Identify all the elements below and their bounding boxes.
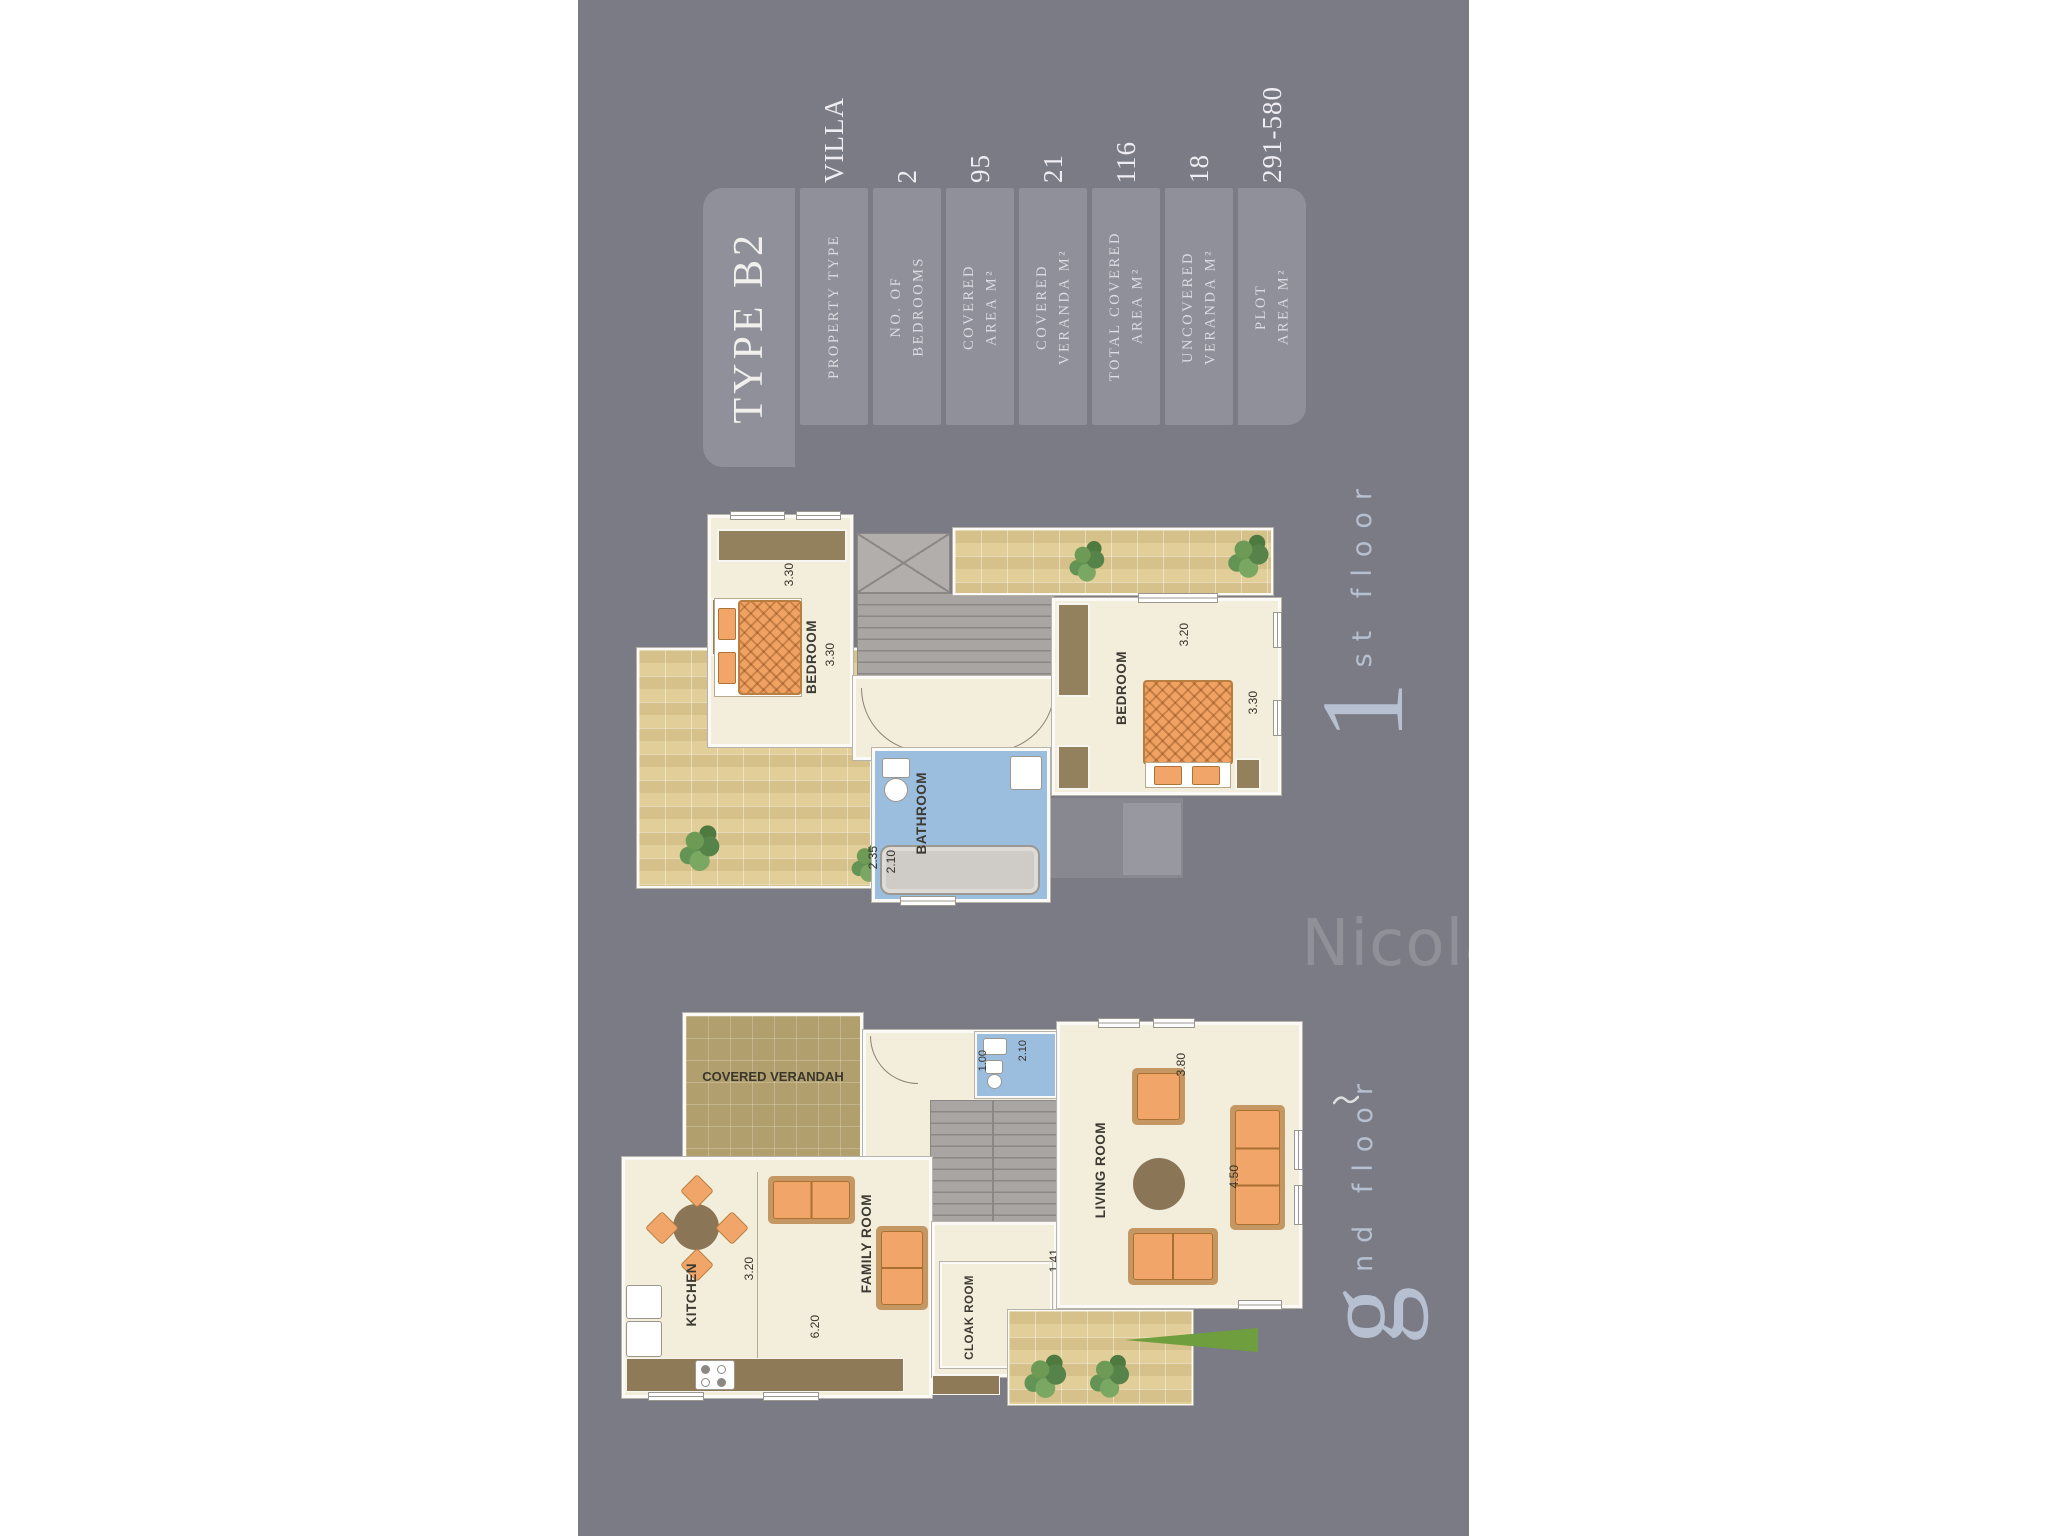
dim-bedroom-left-d: 3.30 bbox=[822, 636, 838, 674]
plant bbox=[1088, 1352, 1136, 1402]
cloak-room-label: CLOAK ROOM bbox=[960, 1274, 980, 1360]
window bbox=[1294, 1130, 1303, 1170]
sofa bbox=[768, 1176, 855, 1224]
kitchen-label: KITCHEN bbox=[680, 1253, 702, 1337]
bedroom-right-label: BEDROOM bbox=[1110, 648, 1132, 728]
spec-label-bedrooms: NO. OF BEDROOMS bbox=[873, 188, 941, 425]
spec-value-plot-area: 291-580 bbox=[1238, 25, 1306, 183]
plant bbox=[678, 822, 726, 876]
window bbox=[648, 1392, 704, 1401]
first-floor-label: 1st floor bbox=[1313, 495, 1413, 740]
room-divider bbox=[757, 1172, 758, 1358]
bed-blanket bbox=[1143, 680, 1233, 765]
window bbox=[1294, 1185, 1303, 1225]
window bbox=[900, 896, 956, 906]
pillow bbox=[1154, 766, 1182, 785]
spec-label-total-covered: TOTAL COVERED AREA M² bbox=[1092, 188, 1160, 425]
dim-living-w: 3.80 bbox=[1173, 1046, 1189, 1084]
kitchen-sink bbox=[626, 1321, 662, 1357]
window bbox=[1238, 1300, 1282, 1310]
bathtub bbox=[880, 845, 1040, 895]
covered-verandah-label: COVERED VERANDAH bbox=[688, 1066, 858, 1086]
spec-value-bedrooms: 2 bbox=[873, 25, 941, 183]
staircase bbox=[857, 593, 1055, 676]
fridge bbox=[626, 1285, 662, 1319]
dim-bedroom-left-w: 3.30 bbox=[781, 556, 797, 594]
bathroom-sink bbox=[1010, 756, 1042, 790]
spec-value-total-covered: 116 bbox=[1092, 25, 1160, 183]
bathroom-label: BATHROOM bbox=[910, 758, 932, 868]
burner bbox=[717, 1365, 726, 1374]
dining-table bbox=[673, 1204, 719, 1250]
living-room-label: LIVING ROOM bbox=[1088, 1118, 1112, 1222]
bed-blanket bbox=[738, 600, 802, 695]
spec-value-covered-area: 95 bbox=[946, 25, 1014, 183]
sofa bbox=[1128, 1228, 1218, 1285]
wardrobe bbox=[1057, 745, 1090, 790]
family-room-label: FAMILY ROOM bbox=[855, 1192, 877, 1296]
dim-bedroom-right-w: 3.20 bbox=[1176, 616, 1192, 654]
toilet-tank bbox=[882, 758, 910, 778]
spec-label-property-type: PROPERTY TYPE bbox=[800, 188, 868, 425]
dim-bedroom-right-d: 3.30 bbox=[1245, 684, 1261, 722]
spec-label-uncovered-veranda: UNCOVERED VERANDA M² bbox=[1165, 188, 1233, 425]
burner bbox=[701, 1365, 710, 1374]
dim-kitchen-l: 6.20 bbox=[807, 1308, 823, 1346]
plant bbox=[1022, 1352, 1074, 1402]
dim-wc-d: 2.10 bbox=[1016, 1034, 1030, 1068]
pillow bbox=[718, 608, 736, 640]
kitchen-counter bbox=[626, 1358, 904, 1392]
window bbox=[1273, 700, 1282, 736]
dim-kitchen-w: 3.20 bbox=[741, 1250, 757, 1288]
dim-bathroom-w: 2.35 bbox=[865, 838, 880, 878]
grey-panel: VILLA 2 95 21 116 18 291-580 TYPE B2 PRO… bbox=[578, 0, 1469, 1536]
plant bbox=[1068, 538, 1110, 586]
bedside-unit bbox=[1235, 758, 1261, 790]
burner bbox=[701, 1378, 710, 1387]
ground-floor-label: gnd floor bbox=[1317, 1035, 1412, 1345]
toilet-bowl bbox=[884, 778, 908, 802]
window bbox=[1138, 593, 1218, 603]
spec-label-covered-veranda: COVERED VERANDA M² bbox=[1019, 188, 1087, 425]
burner bbox=[717, 1378, 726, 1387]
spec-label-plot-area: PLOT AREA M² bbox=[1238, 188, 1306, 425]
dim-living-l: 4.50 bbox=[1226, 1158, 1242, 1196]
window bbox=[1098, 1018, 1140, 1028]
plant bbox=[1226, 532, 1276, 582]
bedroom-left-label: BEDROOM bbox=[800, 612, 822, 702]
stove bbox=[695, 1360, 735, 1390]
window bbox=[730, 511, 785, 520]
spec-title-cell: TYPE B2 bbox=[703, 188, 795, 467]
watermark-logo-square bbox=[1123, 803, 1181, 875]
spec-value-property-type: VILLA bbox=[800, 25, 868, 183]
spec-value-uncovered-veranda: 18 bbox=[1165, 25, 1233, 183]
dim-wc-w: 1.00 bbox=[976, 1044, 990, 1078]
spec-value-covered-veranda: 21 bbox=[1019, 25, 1087, 183]
window bbox=[1273, 612, 1282, 648]
pillow bbox=[718, 652, 736, 684]
upper-veranda bbox=[953, 528, 1273, 595]
entry-step bbox=[932, 1375, 1000, 1395]
entrance-arrow-icon bbox=[1125, 1328, 1258, 1352]
window bbox=[796, 511, 841, 520]
flyer-canvas: VILLA 2 95 21 116 18 291-580 TYPE B2 PRO… bbox=[0, 0, 2048, 1536]
wardrobe bbox=[1057, 603, 1090, 697]
spec-label-covered-area: COVERED AREA M² bbox=[946, 188, 1014, 425]
sofa bbox=[876, 1226, 928, 1310]
stair-flight bbox=[993, 1100, 1057, 1222]
window bbox=[763, 1392, 819, 1401]
stair-flight bbox=[930, 1100, 993, 1222]
pillow bbox=[1192, 766, 1220, 785]
stair-void bbox=[857, 533, 950, 593]
coffee-table bbox=[1133, 1158, 1185, 1210]
dim-bathroom-d: 2.10 bbox=[883, 842, 898, 882]
watermark-brand: Nicolaou Estates bbox=[1226, 903, 1926, 985]
window bbox=[1153, 1018, 1195, 1028]
